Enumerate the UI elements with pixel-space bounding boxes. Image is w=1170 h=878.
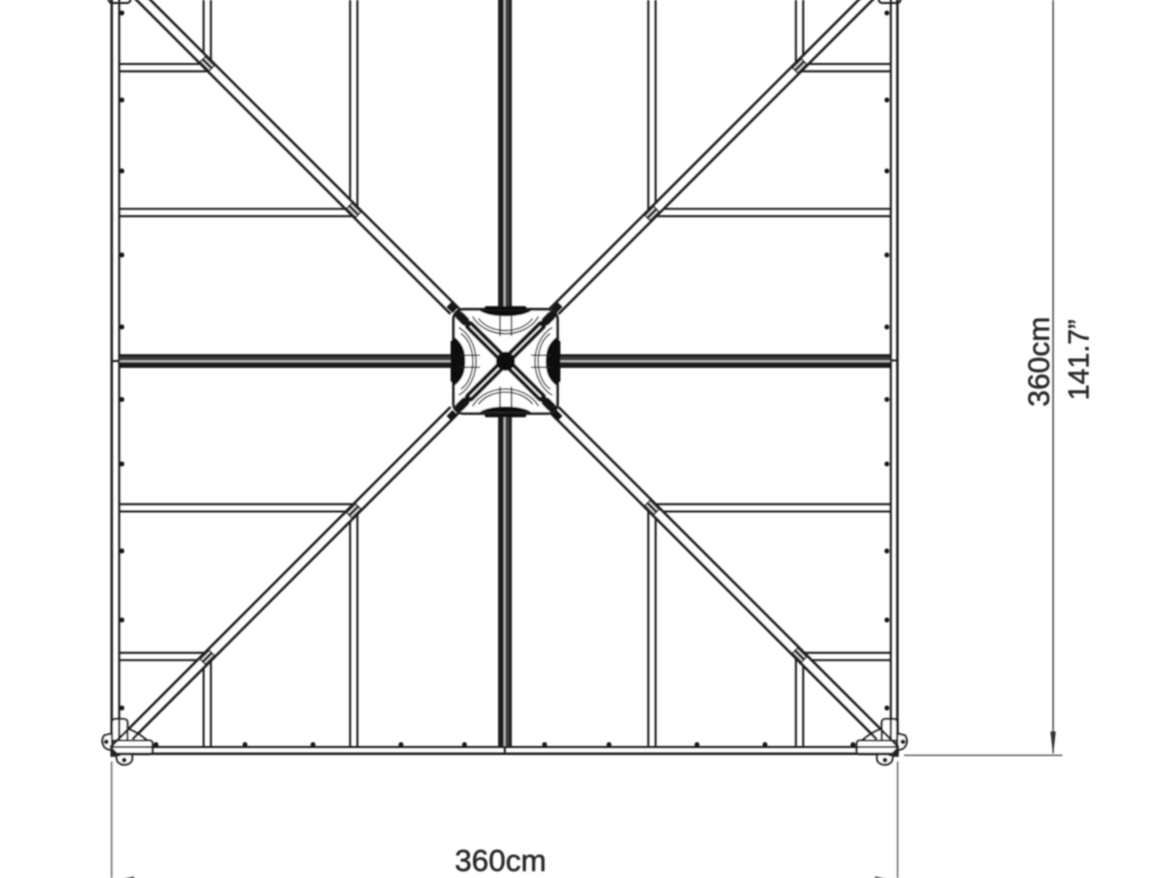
svg-text:360cm: 360cm bbox=[455, 844, 547, 878]
svg-text:360cm: 360cm bbox=[1023, 317, 1056, 407]
svg-text:141.7”: 141.7” bbox=[1064, 319, 1096, 400]
